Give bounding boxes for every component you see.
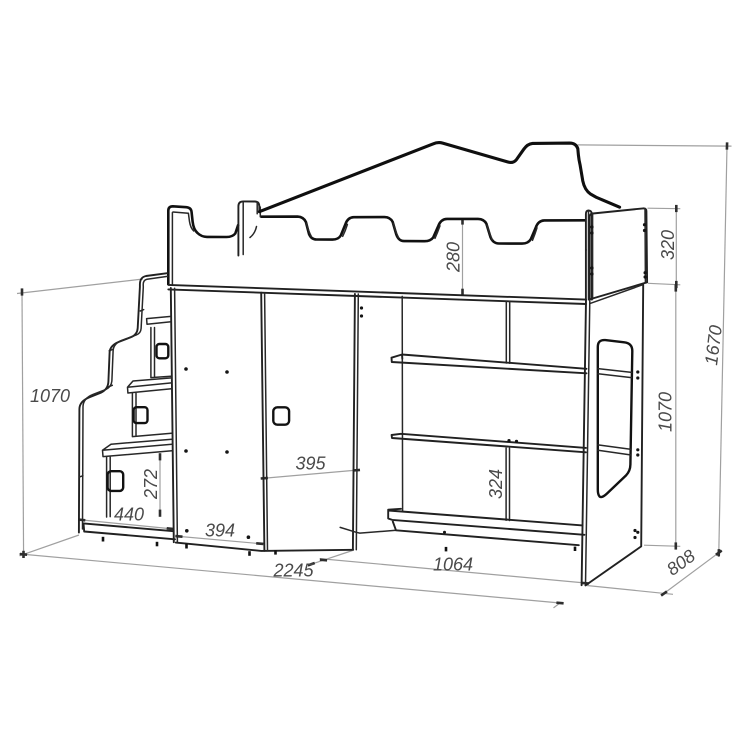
svg-text:2245: 2245 <box>272 561 314 581</box>
svg-text:272: 272 <box>141 469 161 500</box>
svg-text:394: 394 <box>205 521 235 541</box>
svg-text:395: 395 <box>295 454 326 474</box>
svg-text:1070: 1070 <box>30 386 70 406</box>
svg-text:324: 324 <box>486 469 506 499</box>
svg-text:440: 440 <box>114 505 144 525</box>
svg-text:320: 320 <box>658 230 678 260</box>
svg-text:280: 280 <box>444 242 464 273</box>
svg-text:1064: 1064 <box>433 555 473 575</box>
svg-text:1070: 1070 <box>656 392 676 432</box>
